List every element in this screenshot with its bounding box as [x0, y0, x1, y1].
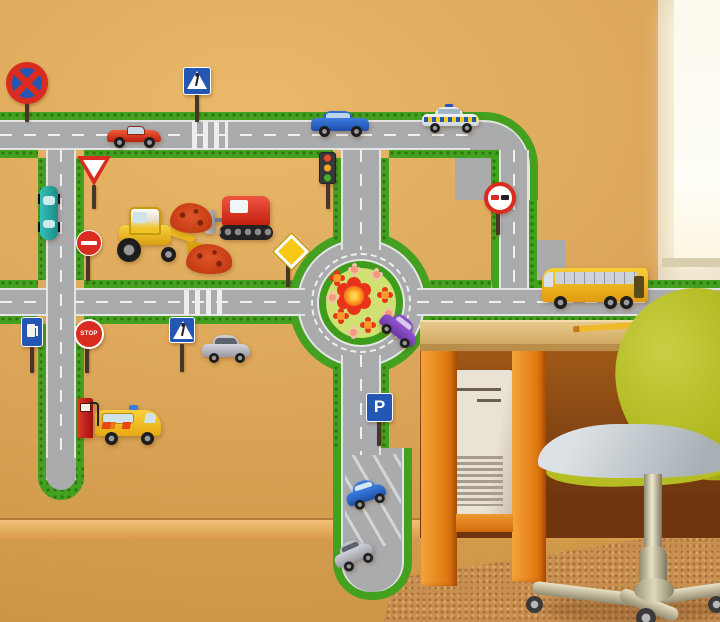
flower — [337, 312, 345, 320]
right-vertical-road — [499, 150, 529, 290]
light-bar — [445, 104, 453, 107]
wheel — [114, 137, 125, 148]
road-border — [381, 158, 389, 242]
yellow-bus — [542, 266, 649, 309]
cab-window — [230, 200, 248, 213]
flower — [364, 321, 372, 329]
chair-base-hub — [634, 578, 674, 602]
flower — [344, 286, 364, 306]
blue-sedan — [311, 111, 369, 136]
road-border — [0, 280, 38, 288]
wheel — [235, 353, 245, 363]
sign-inner — [83, 160, 105, 178]
flower — [351, 266, 358, 273]
red-sports-car — [107, 124, 161, 147]
fuel-station-sign — [21, 317, 43, 347]
caster-wheel — [526, 596, 543, 613]
fuel-pump — [75, 394, 99, 444]
wheel — [604, 296, 617, 309]
teal-car — [38, 186, 62, 242]
wheel — [141, 432, 154, 445]
parking-dead-end — [333, 448, 412, 600]
sign-pole — [92, 185, 96, 209]
sign-pole — [195, 93, 199, 122]
bus-windshield — [544, 272, 553, 287]
caster-wheel — [636, 608, 656, 622]
flower — [350, 329, 357, 336]
wheel — [161, 247, 176, 262]
chair-seat — [538, 424, 720, 478]
flower — [381, 291, 389, 299]
pump-hose — [90, 402, 99, 426]
no-entry-sign — [76, 230, 102, 256]
bus-windows — [555, 272, 637, 284]
wheel — [462, 123, 472, 133]
cab-window — [133, 212, 147, 223]
wheel — [319, 126, 330, 137]
traffic-light — [319, 152, 336, 184]
road-border — [0, 112, 470, 120]
car-body — [40, 186, 58, 240]
tower-vents — [455, 456, 503, 506]
stop-sign: STOP — [74, 319, 104, 349]
silver-car — [202, 335, 250, 364]
road-border — [389, 150, 499, 158]
windshield — [144, 413, 157, 423]
drive-slot — [477, 399, 501, 402]
parking-sign: P — [366, 393, 393, 422]
wheel — [144, 137, 155, 148]
roundabout-north-arm — [341, 150, 381, 250]
road-border — [76, 158, 84, 280]
wheel — [351, 126, 362, 137]
sign-pole — [86, 255, 90, 281]
zebra-crossing — [192, 122, 228, 149]
car-window — [43, 196, 55, 205]
pedestrian-crossing-sign — [169, 317, 195, 343]
drive-slot — [455, 388, 501, 391]
sign-bar — [81, 241, 97, 245]
wheel — [430, 123, 440, 133]
wheel — [209, 353, 219, 363]
sign-pole — [30, 347, 34, 373]
car-glyph — [491, 195, 499, 200]
zebra-crossing — [184, 290, 222, 315]
bus-door — [634, 276, 644, 298]
car-window — [127, 126, 145, 135]
road-border — [84, 280, 295, 288]
sign-pole — [377, 421, 381, 446]
no-stopping-sign — [6, 62, 48, 104]
fuel-pump-icon — [27, 324, 35, 337]
caster-wheel — [708, 596, 720, 613]
no-overtaking-sign — [484, 182, 516, 214]
dirt-pile — [186, 244, 232, 274]
flower — [329, 294, 336, 301]
road-border — [333, 365, 341, 448]
car-glyph — [501, 195, 509, 200]
wheel — [361, 551, 374, 564]
window — [674, 0, 720, 260]
pedestrian-crossing-sign — [183, 67, 211, 95]
road-border — [0, 150, 38, 158]
yellow-van — [95, 402, 165, 448]
wheel — [620, 296, 633, 309]
road-border — [84, 150, 333, 158]
flower — [373, 271, 380, 278]
van-stripe — [97, 422, 143, 429]
room-photo: STOP P — [0, 0, 720, 622]
desk-left-panel — [421, 346, 457, 586]
top-road — [0, 120, 470, 150]
wheel — [105, 432, 118, 445]
wheel — [554, 296, 567, 309]
sign-pole — [180, 344, 184, 372]
window-sill — [662, 258, 720, 267]
sign-pole — [496, 211, 500, 235]
flower — [333, 274, 341, 282]
traffic-light-pole — [326, 183, 330, 209]
road-border — [430, 280, 491, 288]
left-road-end — [46, 458, 76, 490]
road-border — [529, 200, 537, 288]
police-car — [422, 106, 479, 133]
sign-pole — [85, 347, 89, 373]
police-stripe — [424, 117, 477, 122]
desk-bottom-shelf — [456, 514, 513, 532]
wheel — [117, 238, 141, 262]
red-bulldozer — [204, 192, 278, 242]
car-window — [43, 220, 55, 228]
tracks — [219, 225, 273, 240]
